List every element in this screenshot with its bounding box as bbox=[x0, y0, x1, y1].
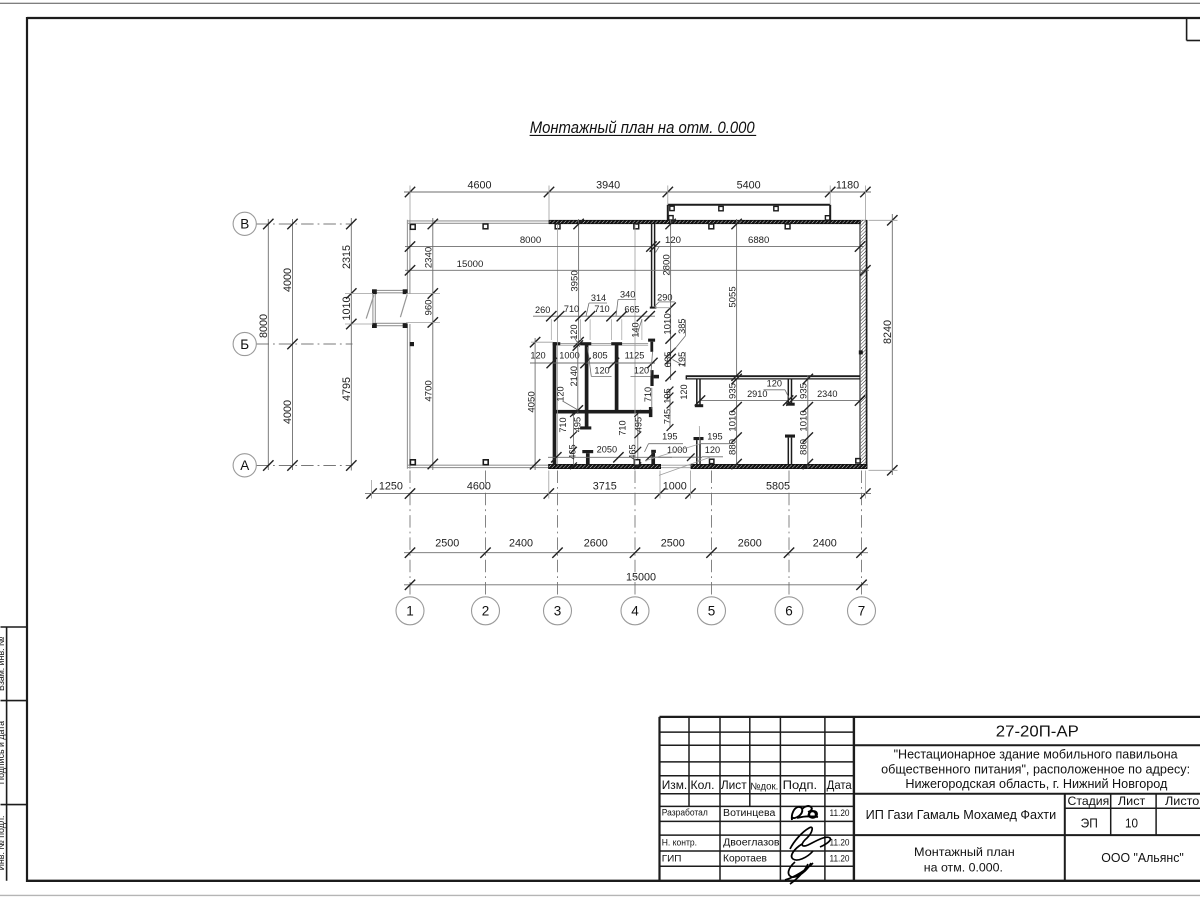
svg-text:120: 120 bbox=[634, 366, 649, 376]
svg-text:4000: 4000 bbox=[282, 400, 294, 424]
svg-text:710: 710 bbox=[618, 420, 628, 435]
svg-text:Стадия: Стадия bbox=[1068, 794, 1110, 808]
svg-text:120: 120 bbox=[767, 378, 782, 388]
svg-text:Коротаев: Коротаев bbox=[723, 854, 767, 865]
svg-text:2340: 2340 bbox=[817, 389, 837, 399]
svg-text:ЭП: ЭП bbox=[1081, 816, 1098, 830]
svg-text:ГИП: ГИП bbox=[662, 854, 682, 864]
svg-text:5: 5 bbox=[708, 604, 716, 619]
svg-text:3940: 3940 bbox=[596, 180, 620, 192]
svg-text:11.20: 11.20 bbox=[830, 854, 850, 865]
svg-text:4: 4 bbox=[631, 604, 639, 619]
svg-text:А: А bbox=[240, 458, 249, 473]
svg-text:ООО "Альянс": ООО "Альянс" bbox=[1101, 851, 1184, 865]
svg-text:Подп.: Подп. bbox=[783, 778, 818, 792]
svg-text:2500: 2500 bbox=[435, 538, 459, 550]
svg-text:Изм.: Изм. bbox=[662, 778, 688, 792]
svg-text:340: 340 bbox=[620, 290, 635, 300]
svg-text:5400: 5400 bbox=[737, 180, 761, 192]
svg-text:710: 710 bbox=[594, 304, 609, 314]
svg-text:195: 195 bbox=[662, 388, 672, 403]
svg-text:10: 10 bbox=[1125, 816, 1138, 830]
svg-text:Разработал: Разработал bbox=[662, 808, 708, 818]
svg-text:15000: 15000 bbox=[626, 571, 656, 583]
svg-text:5805: 5805 bbox=[766, 480, 790, 492]
svg-text:2600: 2600 bbox=[738, 538, 762, 550]
svg-text:2400: 2400 bbox=[813, 538, 837, 550]
svg-text:140: 140 bbox=[631, 322, 641, 337]
svg-text:11.20: 11.20 bbox=[830, 838, 850, 849]
svg-text:880: 880 bbox=[727, 439, 738, 455]
svg-text:3715: 3715 bbox=[593, 480, 617, 492]
svg-text:1250: 1250 bbox=[379, 480, 403, 492]
svg-text:2: 2 bbox=[482, 604, 490, 619]
svg-text:15000: 15000 bbox=[457, 259, 484, 270]
svg-text:8240: 8240 bbox=[882, 320, 894, 344]
svg-text:1010: 1010 bbox=[727, 410, 738, 431]
svg-text:3950: 3950 bbox=[570, 270, 581, 291]
svg-text:1000: 1000 bbox=[663, 480, 687, 492]
svg-text:2315: 2315 bbox=[341, 245, 353, 269]
svg-text:314: 314 bbox=[591, 293, 606, 303]
svg-text:2600: 2600 bbox=[584, 538, 608, 550]
svg-text:495: 495 bbox=[572, 417, 582, 432]
svg-text:120: 120 bbox=[569, 324, 579, 339]
svg-text:Двоеглазов: Двоеглазов bbox=[723, 838, 779, 849]
svg-text:1180: 1180 bbox=[836, 180, 859, 192]
svg-text:Вотинцева: Вотинцева bbox=[723, 808, 776, 819]
svg-text:290: 290 bbox=[657, 293, 672, 303]
svg-text:1010: 1010 bbox=[341, 296, 353, 320]
svg-text:195: 195 bbox=[707, 431, 722, 441]
svg-text:960: 960 bbox=[424, 299, 435, 315]
svg-text:№док.: №док. bbox=[750, 781, 778, 792]
svg-text:710: 710 bbox=[564, 304, 579, 314]
svg-text:2500: 2500 bbox=[661, 538, 685, 550]
svg-text:В: В bbox=[240, 217, 249, 232]
svg-text:2140: 2140 bbox=[569, 366, 579, 386]
svg-text:1000: 1000 bbox=[559, 351, 579, 361]
svg-text:Н. контр.: Н. контр. bbox=[662, 837, 697, 847]
svg-text:4000: 4000 bbox=[282, 268, 294, 292]
svg-text:на отм. 0.000.: на отм. 0.000. bbox=[924, 861, 1003, 875]
svg-text:Дата: Дата bbox=[827, 778, 852, 792]
svg-text:Листов: Листов bbox=[1165, 794, 1200, 808]
svg-text:935: 935 bbox=[727, 383, 738, 399]
svg-text:665: 665 bbox=[663, 351, 674, 367]
svg-text:260: 260 bbox=[535, 305, 550, 315]
svg-text:120: 120 bbox=[665, 235, 681, 246]
svg-text:3: 3 bbox=[554, 604, 562, 619]
svg-text:"Нестационарное здание мобильн: "Нестационарное здание мобильного павиль… bbox=[894, 748, 1178, 762]
svg-text:4795: 4795 bbox=[341, 377, 353, 401]
svg-text:4700: 4700 bbox=[424, 380, 435, 401]
svg-text:665: 665 bbox=[624, 305, 639, 315]
svg-text:935: 935 bbox=[799, 383, 810, 399]
svg-text:Нижегородская область, г. Нижн: Нижегородская область, г. Нижний Новгоро… bbox=[905, 777, 1168, 791]
svg-text:7: 7 bbox=[858, 604, 866, 619]
svg-text:Взам. инв. №: Взам. инв. № bbox=[0, 637, 6, 692]
svg-text:2050: 2050 bbox=[597, 445, 617, 455]
svg-text:Б: Б bbox=[240, 337, 249, 352]
svg-text:8000: 8000 bbox=[520, 235, 541, 246]
svg-text:Монтажный план: Монтажный план bbox=[914, 845, 1015, 859]
svg-text:1010: 1010 bbox=[663, 313, 674, 334]
svg-text:2400: 2400 bbox=[509, 538, 533, 550]
svg-text:1125: 1125 bbox=[625, 351, 645, 361]
svg-text:ИП Гази Гамаль Мохамед Фахти: ИП Гази Гамаль Мохамед Фахти bbox=[866, 807, 1057, 822]
svg-text:805: 805 bbox=[592, 351, 607, 361]
svg-text:Монтажный план на отм. 0.000: Монтажный план на отм. 0.000 bbox=[530, 118, 755, 137]
svg-text:27-20П-АР: 27-20П-АР bbox=[996, 723, 1079, 740]
svg-text:Кол.: Кол. bbox=[691, 778, 715, 792]
svg-text:Подпись и дата: Подпись и дата bbox=[0, 721, 6, 784]
svg-text:120: 120 bbox=[556, 386, 566, 401]
svg-text:11.20: 11.20 bbox=[830, 808, 850, 819]
svg-text:общественного питания", распол: общественного питания", расположенное по… bbox=[881, 762, 1190, 776]
svg-text:195: 195 bbox=[662, 431, 677, 441]
svg-text:2800: 2800 bbox=[662, 254, 673, 275]
svg-text:120: 120 bbox=[679, 384, 689, 399]
svg-text:Инв. № подл.: Инв. № подл. bbox=[0, 816, 6, 871]
svg-text:120: 120 bbox=[705, 445, 720, 455]
svg-text:4050: 4050 bbox=[526, 391, 537, 412]
svg-text:8000: 8000 bbox=[258, 314, 270, 338]
svg-text:Лист: Лист bbox=[1118, 794, 1146, 808]
svg-text:4600: 4600 bbox=[467, 180, 491, 192]
svg-text:6880: 6880 bbox=[748, 235, 769, 246]
svg-text:120: 120 bbox=[594, 366, 609, 376]
svg-text:495: 495 bbox=[634, 417, 644, 432]
svg-text:2910: 2910 bbox=[747, 389, 767, 399]
svg-text:1: 1 bbox=[406, 604, 414, 619]
svg-text:4600: 4600 bbox=[467, 480, 491, 492]
svg-text:1010: 1010 bbox=[799, 410, 810, 431]
svg-text:6: 6 bbox=[785, 604, 793, 619]
svg-text:120: 120 bbox=[530, 351, 545, 361]
svg-text:710: 710 bbox=[558, 417, 568, 432]
svg-text:880: 880 bbox=[799, 439, 810, 455]
svg-text:Лист: Лист bbox=[721, 778, 747, 792]
svg-text:2340: 2340 bbox=[424, 247, 435, 268]
svg-text:5055: 5055 bbox=[727, 286, 738, 307]
svg-text:745: 745 bbox=[662, 409, 672, 424]
